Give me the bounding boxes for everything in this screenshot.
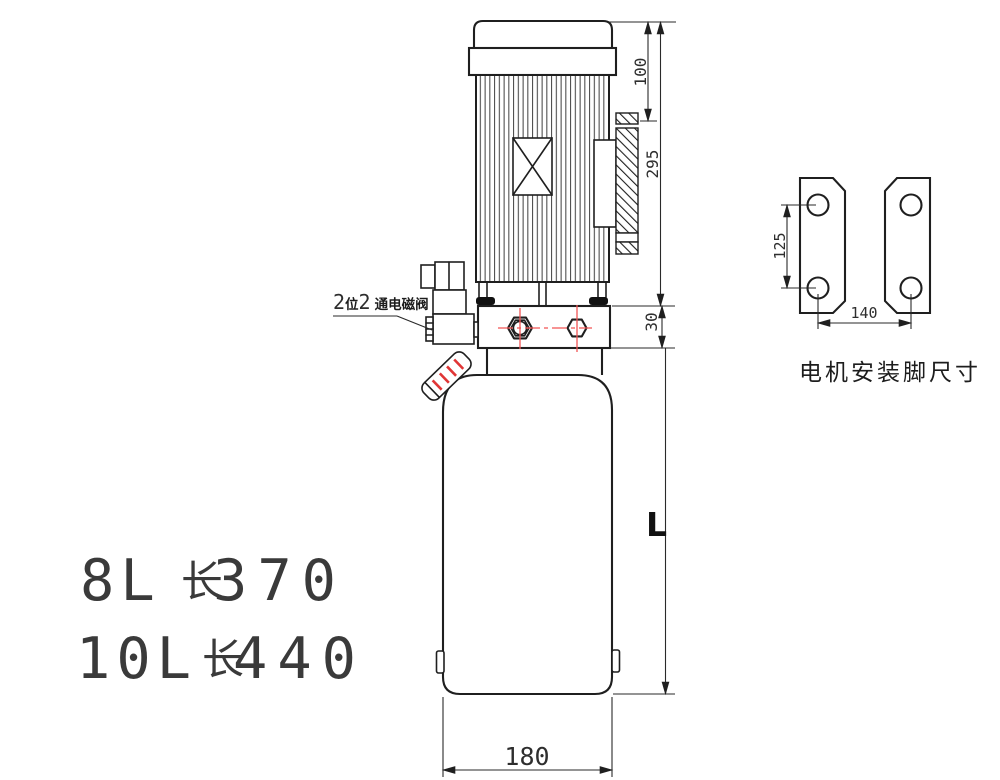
dim-125: 125	[771, 232, 789, 259]
solenoid-body	[433, 314, 474, 344]
tank-tab-left	[437, 651, 445, 673]
dim-100: 100	[631, 58, 650, 87]
dim-L: L	[646, 505, 667, 544]
pump-neck	[487, 348, 602, 375]
spec1-capacity: 8L	[80, 548, 161, 614]
solenoid-stub	[474, 322, 478, 337]
dim-140: 140	[850, 304, 877, 322]
mounting-foot-left	[800, 178, 845, 313]
motor-side-cover-plate	[594, 140, 616, 227]
solenoid-label: 2位2通电磁阀	[333, 290, 429, 314]
dim-30: 30	[642, 312, 661, 331]
motor-rim-band	[469, 48, 616, 75]
motor-fan-cover	[474, 21, 612, 48]
dim-295: 295	[643, 150, 662, 179]
technical-drawing-canvas: 2位2通电磁阀 100 295	[0, 0, 1000, 780]
motor-foot-pad-left	[476, 297, 495, 305]
spec2-value: 440	[233, 626, 366, 692]
spec1-value: 370	[213, 548, 346, 614]
motor-base-legs	[476, 282, 608, 305]
solenoid-valve	[421, 262, 478, 344]
electric-motor	[469, 21, 638, 305]
dim-180: 180	[504, 742, 549, 771]
feet-caption: 电机安装脚尺寸	[799, 360, 981, 386]
din-connector-small	[421, 265, 435, 288]
valve-manifold-block	[478, 305, 610, 352]
oil-tank	[443, 375, 612, 694]
spec2-capacity: 10L	[76, 626, 197, 692]
spec-text: 8L 长 370 10L 长 440	[76, 548, 366, 692]
motor-terminal-box	[616, 113, 638, 254]
solenoid-leader	[333, 316, 432, 330]
hydraulic-power-unit-drawing: 2位2通电磁阀 100 295	[0, 0, 1000, 780]
mounting-foot-right	[885, 178, 930, 313]
motor-foot-pad-right	[589, 297, 608, 305]
solenoid-coil	[433, 290, 466, 314]
tank-tab-right	[612, 650, 620, 672]
motor-nameplate	[513, 138, 552, 195]
